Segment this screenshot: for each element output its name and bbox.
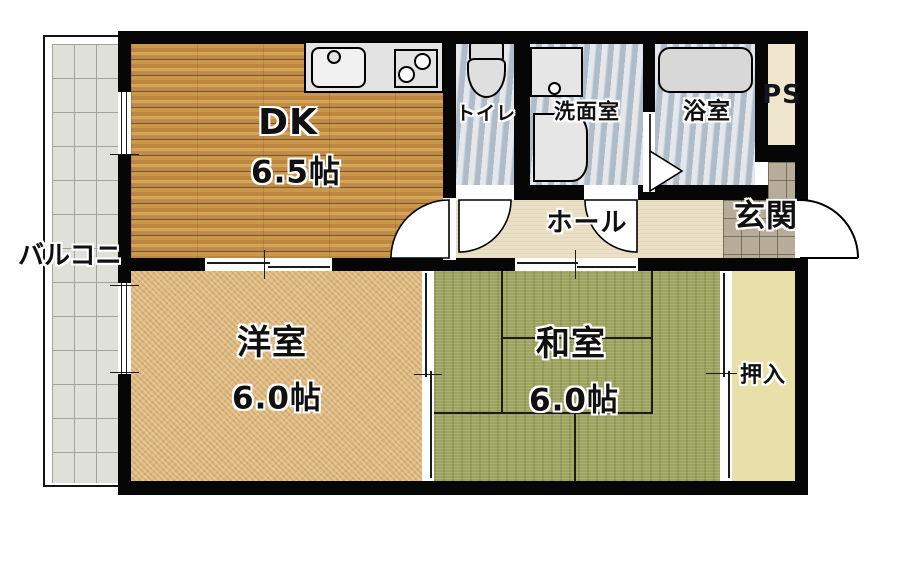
balcony-label-clip: バルコニー [18, 239, 121, 273]
pipe-space-label: PS [762, 82, 802, 108]
wall-ps-bottom [755, 145, 808, 162]
wall-right-upper [795, 44, 808, 201]
western-window-line [126, 283, 127, 374]
japanese-size: 6.0帖 [529, 386, 619, 417]
hall-japanese-slider [515, 258, 638, 271]
window-tick [110, 154, 139, 155]
toilet-door-opening [456, 185, 514, 200]
balcony-label: バルコニー [18, 239, 121, 273]
entrance-door-swing [800, 200, 858, 258]
western-label: 洋室 [237, 326, 307, 360]
balcony-railing-bottom [43, 485, 120, 487]
window-tick [575, 250, 576, 279]
wall-top [118, 31, 808, 44]
stove-burner [398, 66, 415, 83]
dk-window-line [126, 92, 127, 155]
dk-western-slider [205, 258, 332, 271]
wall-dk-toilet [443, 44, 456, 200]
slider-panel [517, 262, 578, 264]
dk-label: DK [258, 105, 318, 141]
western-size: 6.0帖 [232, 384, 322, 415]
slider-panel [207, 262, 270, 264]
hall-label: ホール [546, 210, 627, 236]
bathtub [658, 47, 753, 93]
bathroom-label: 浴室 [683, 101, 731, 124]
washroom-door-opening [584, 185, 638, 200]
wall-right-lower [795, 258, 808, 495]
floor-plan: DK 6.5帖 洋室 6.0帖 和室 6.0帖 トイレ 洗面室 浴室 ホール 玄… [0, 0, 900, 566]
dk-size: 6.5帖 [251, 158, 341, 189]
slider-panel [430, 371, 432, 478]
stove-burner [414, 53, 431, 70]
window-tick [110, 285, 139, 286]
bathroom-door-opening [643, 112, 655, 192]
slider-panel [268, 266, 330, 268]
closet-slider [720, 271, 732, 481]
western-window-line [121, 283, 122, 374]
western-window [118, 283, 131, 374]
wall-toilet-washroom [514, 44, 530, 200]
faucet-icon [327, 50, 341, 64]
japanese-room-floor [434, 271, 720, 481]
slider-panel [425, 273, 427, 377]
window-tick [264, 250, 265, 279]
slider-panel [728, 371, 730, 478]
washbasin-drain [548, 82, 561, 95]
dk-window [118, 92, 131, 155]
window-tick [706, 373, 737, 374]
dk-window-line [121, 92, 122, 155]
slider-panel [577, 266, 636, 268]
wall-bottom [118, 481, 808, 495]
tatami-line [501, 271, 503, 413]
japanese-label: 和室 [536, 327, 606, 361]
toilet-label: トイレ [456, 105, 516, 124]
closet-label: 押入 [740, 365, 786, 387]
entrance-label: 玄関 [734, 202, 798, 233]
western-room-floor [131, 271, 422, 481]
dk-door-opening [443, 198, 456, 260]
western-japanese-slider [422, 271, 434, 481]
slider-panel [723, 273, 725, 377]
window-tick [414, 374, 442, 375]
tatami-line [651, 271, 653, 413]
washroom-label: 洗面室 [554, 102, 620, 123]
balcony-railing-top [43, 35, 120, 37]
window-tick [110, 372, 139, 373]
tatami-line [574, 412, 576, 481]
